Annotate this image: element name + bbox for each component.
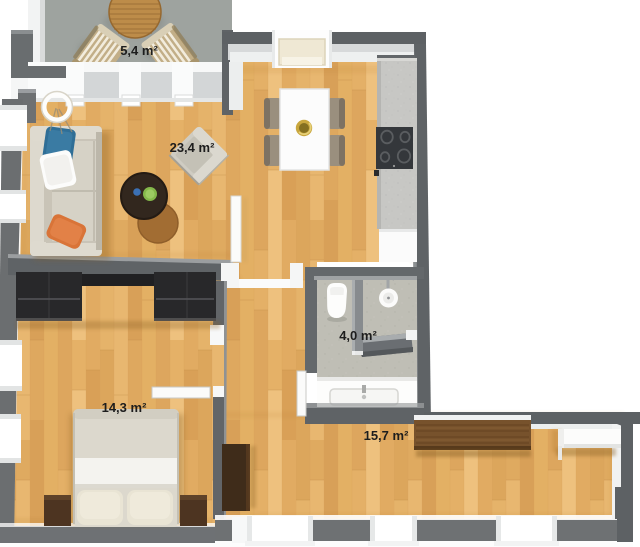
svg-text:14,3 m²: 14,3 m² [102, 400, 147, 415]
svg-text:4,0 m²: 4,0 m² [339, 328, 377, 343]
svg-text:5,4 m²: 5,4 m² [120, 43, 158, 58]
svg-text:23,4 m²: 23,4 m² [170, 140, 215, 155]
svg-text:15,7 m²: 15,7 m² [364, 428, 409, 443]
